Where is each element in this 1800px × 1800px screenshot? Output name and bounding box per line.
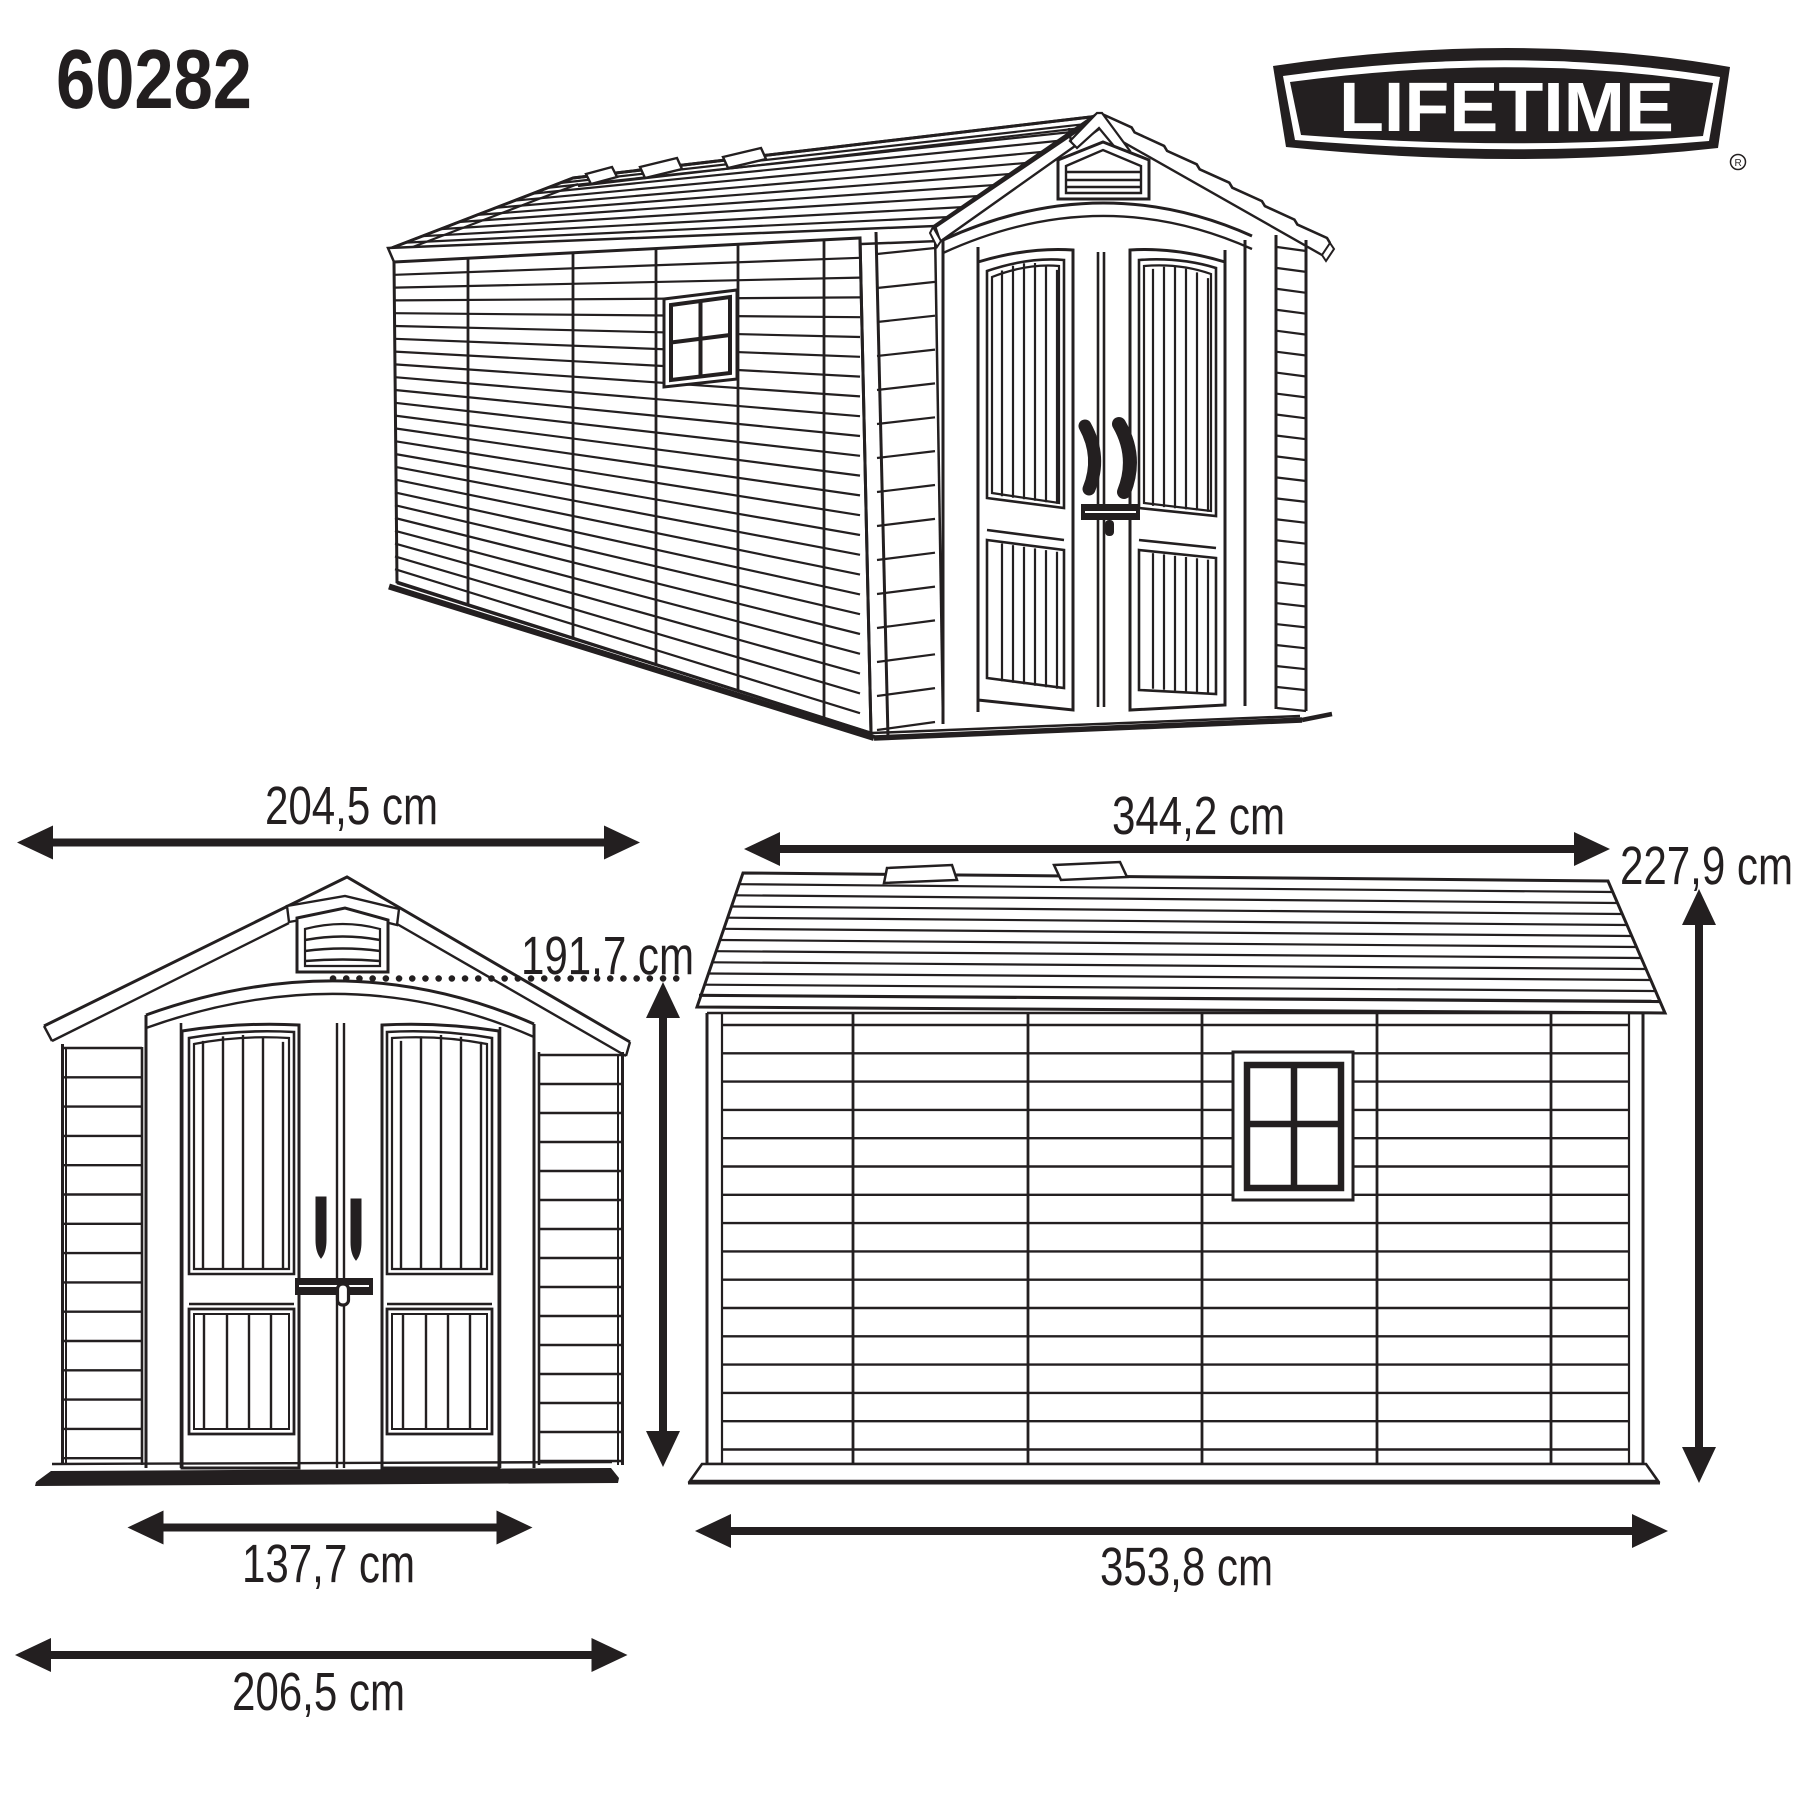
svg-text:R: R bbox=[1735, 158, 1742, 169]
svg-text:204,5 cm: 204,5 cm bbox=[265, 776, 438, 836]
svg-text:344,2 cm: 344,2 cm bbox=[1112, 786, 1285, 846]
svg-text:LIFETIME: LIFETIME bbox=[1339, 68, 1674, 146]
svg-text:227,9 cm: 227,9 cm bbox=[1620, 836, 1793, 896]
svg-text:353,8 cm: 353,8 cm bbox=[1100, 1537, 1273, 1597]
svg-text:60282: 60282 bbox=[56, 32, 252, 126]
svg-text:206,5 cm: 206,5 cm bbox=[232, 1662, 405, 1722]
svg-text:137,7 cm: 137,7 cm bbox=[242, 1534, 415, 1594]
